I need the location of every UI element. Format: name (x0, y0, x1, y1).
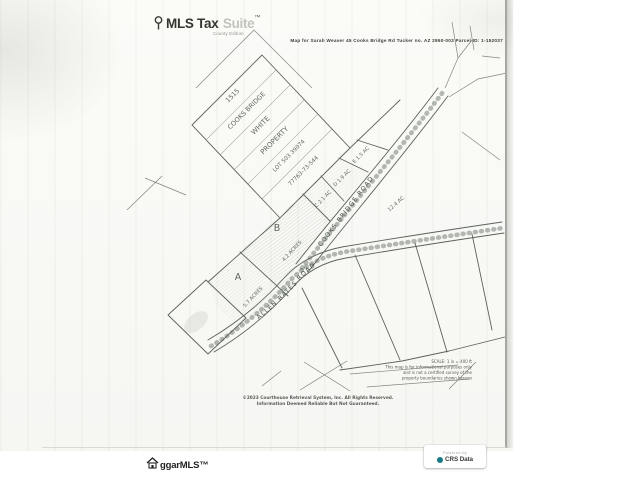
powered-by-label: Powered by (443, 450, 467, 455)
scan-edge-shadow (507, 0, 514, 448)
vendor-logo-icon (437, 457, 443, 463)
wedge-acreage: 12.4 AC (387, 195, 407, 213)
boundary-line (196, 30, 312, 88)
note-line: SCALE: 1 in = 400 ft (431, 359, 472, 364)
note-line: property boundaries shown hereon (402, 376, 473, 381)
powered-by-badge[interactable]: Powered by CRS Data (424, 445, 486, 468)
plat-map-drawing: 1515 COOKS BRIDGE WHITE PROPERTY LOT 503… (0, 0, 640, 480)
mls-watermark-text: ggarMLS™ (160, 460, 209, 471)
parcel-note: WHITE (250, 115, 272, 137)
note-line: and is not a certified survey of the (403, 370, 473, 375)
boundary-line (350, 100, 400, 148)
parcel-note: 1515 (224, 87, 241, 104)
parcel-divider (357, 140, 388, 150)
copyright-line-1: ©2023 Courthouse Retrieval System, Inc. … (243, 395, 394, 401)
copyright-line-2: Information Deemed Reliable But Not Guar… (257, 401, 380, 407)
mls-watermark: ggarMLS™ (146, 456, 209, 474)
parcel-label: E 1.5 AC (352, 145, 372, 165)
house-icon (146, 456, 159, 474)
vendor-name: CRS Data (445, 456, 473, 463)
parcel-letter: A (235, 272, 242, 283)
boundary-line (127, 176, 162, 210)
copyright: ©2023 Courthouse Retrieval System, Inc. … (243, 395, 394, 407)
top-right-roads (445, 22, 507, 160)
mls-tax-suite-screen: MLS Tax Suite™ County Edition Map for Sa… (0, 0, 640, 480)
parcel-e: E 1.5 AC (352, 145, 372, 165)
note-line: This map is for informational purposes o… (384, 365, 472, 370)
parcel-letter: B (274, 223, 281, 234)
